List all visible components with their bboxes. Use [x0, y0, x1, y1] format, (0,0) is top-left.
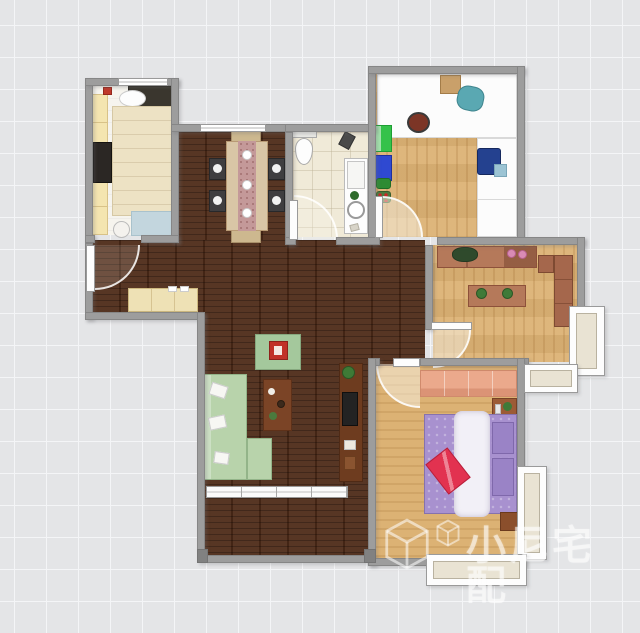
desk-plant — [502, 288, 513, 299]
cabinet-item — [180, 286, 189, 292]
bed-pillow-purple — [492, 458, 514, 496]
balcony-floor[interactable] — [205, 498, 368, 555]
plate — [272, 164, 281, 173]
cup — [268, 388, 275, 395]
wall[interactable] — [85, 78, 93, 243]
bay-window-sill — [524, 473, 540, 553]
nightstand[interactable] — [500, 512, 518, 531]
bay-window-sill — [530, 370, 572, 387]
flower-pink — [507, 249, 516, 258]
tv-unit[interactable] — [93, 142, 112, 183]
wall[interactable] — [285, 124, 376, 132]
bed-pillow-purple — [492, 422, 514, 454]
plant-dark — [452, 247, 478, 262]
bay-window-sill — [576, 313, 597, 369]
door-leaf[interactable] — [86, 245, 95, 292]
dining-chair-end[interactable] — [231, 230, 261, 243]
wall-post — [197, 549, 208, 563]
plate — [242, 180, 252, 190]
bed-pillow — [119, 90, 146, 107]
potted-plant[interactable] — [376, 178, 391, 189]
door-leaf[interactable] — [393, 358, 420, 367]
shelf-item — [344, 440, 356, 450]
door-leaf[interactable] — [431, 322, 472, 330]
plate — [272, 196, 281, 205]
wall[interactable] — [197, 312, 205, 555]
wall[interactable] — [197, 555, 376, 563]
wall[interactable] — [368, 358, 376, 566]
green-cabinet[interactable] — [375, 125, 392, 152]
wall[interactable] — [517, 66, 525, 245]
flower-pink — [518, 250, 527, 259]
washer-drum[interactable] — [347, 201, 365, 219]
master-wardrobe[interactable] — [420, 370, 517, 397]
shelf-plant — [503, 402, 512, 411]
floor-plan-canvas: 小尼宅配 — [0, 0, 640, 633]
wall[interactable] — [437, 237, 585, 245]
window[interactable] — [200, 124, 266, 132]
floor-box-label — [274, 346, 282, 355]
bay-window-sill — [433, 561, 520, 579]
wall[interactable] — [85, 235, 95, 243]
wall[interactable] — [141, 235, 179, 243]
door-leaf[interactable] — [289, 200, 298, 240]
desk-item — [494, 164, 507, 177]
door-leaf[interactable] — [375, 196, 383, 238]
window[interactable] — [118, 78, 168, 86]
stool[interactable] — [113, 221, 130, 238]
sofa-pillow — [213, 451, 230, 465]
wall[interactable] — [171, 78, 179, 243]
shelf-item — [344, 456, 356, 470]
plate — [242, 208, 252, 218]
vanity-cabinet — [347, 161, 365, 189]
shelf-item — [495, 404, 501, 414]
cabinet-item — [168, 286, 177, 292]
tv[interactable] — [342, 392, 358, 426]
study-sofa-corner[interactable] — [538, 255, 554, 273]
wall[interactable] — [420, 358, 529, 366]
office-chair[interactable] — [407, 112, 430, 133]
wall[interactable] — [368, 558, 433, 566]
sofa-chaise[interactable] — [247, 438, 272, 480]
bowl — [277, 400, 285, 408]
wall[interactable] — [336, 237, 380, 245]
plant — [342, 366, 355, 379]
plant-small — [350, 191, 359, 200]
wall-post — [364, 549, 376, 563]
wall[interactable] — [368, 66, 525, 74]
wall[interactable] — [425, 245, 433, 330]
desk-plant — [476, 288, 487, 299]
bed[interactable] — [112, 106, 172, 216]
bedside-rug[interactable] — [131, 211, 176, 236]
plant-small — [269, 412, 277, 420]
plate — [213, 164, 222, 173]
wall[interactable] — [577, 237, 585, 312]
plate — [242, 150, 252, 160]
balcony-sliding-door[interactable] — [206, 486, 348, 498]
wall[interactable] — [85, 312, 205, 320]
plate — [213, 196, 222, 205]
wall-decor[interactable] — [103, 87, 112, 95]
